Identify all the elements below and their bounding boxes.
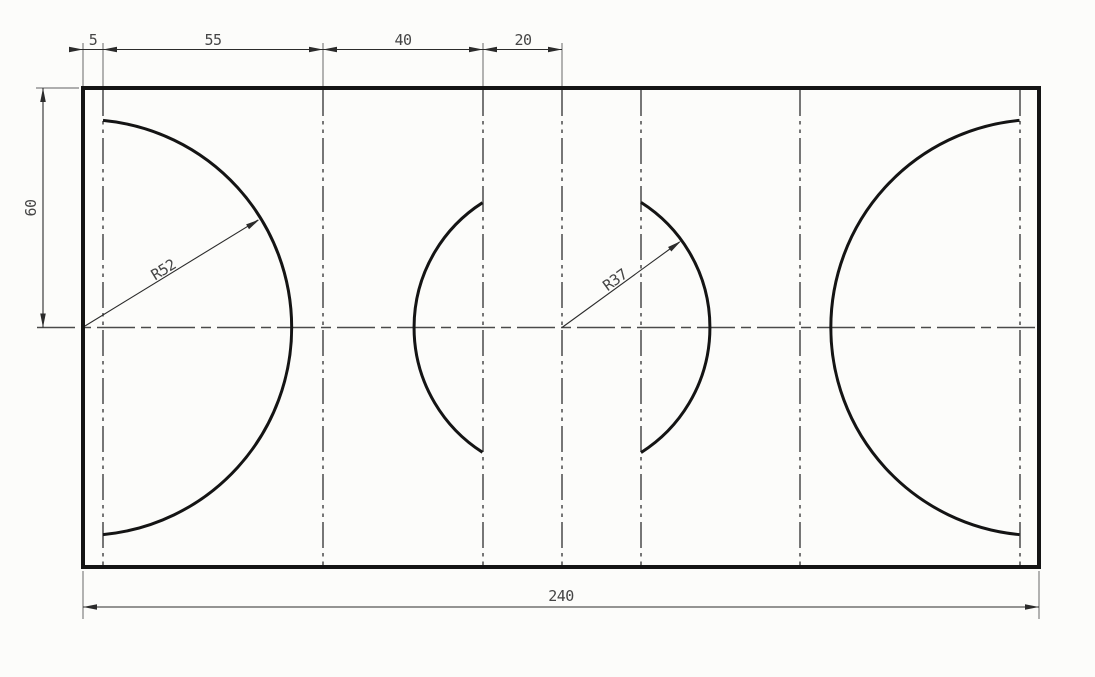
- arrow-dim60-bottom: [40, 314, 46, 328]
- dim-60-label: 60: [22, 199, 40, 217]
- arrow-r52: [246, 217, 261, 229]
- arrow-dim5-left: [69, 47, 83, 53]
- arrow-dim240-left: [83, 604, 97, 610]
- arrow-dim20-right: [548, 47, 562, 53]
- arrow-dim60-top: [40, 88, 46, 102]
- arrow-dim240-right: [1025, 604, 1039, 610]
- arrow-dim55-right: [309, 47, 323, 53]
- drawing-sheet: 5 55 40 20 60 240 R52 R37: [0, 0, 1095, 677]
- arrow-dim55-left: [103, 47, 117, 53]
- engineering-drawing-svg: 5 55 40 20 60 240 R52 R37: [0, 0, 1095, 677]
- arrow-dim40-left: [323, 47, 337, 53]
- dim-40-label: 40: [394, 31, 412, 49]
- dimension-text-group: 5 55 40 20 60 240 R52 R37: [22, 31, 631, 605]
- arrow-dim40-right: [469, 47, 483, 53]
- extension-lines-group: [36, 43, 1039, 619]
- dim-240-label: 240: [548, 587, 574, 605]
- centerlines-group: [37, 90, 1037, 565]
- dim-5-label: 5: [89, 31, 98, 49]
- radius-r52-label: R52: [148, 255, 179, 284]
- radius-r37-label: R37: [599, 265, 630, 295]
- arrow-dim20-left: [483, 47, 497, 53]
- dim-55-label: 55: [204, 31, 221, 49]
- dim-20-label: 20: [514, 31, 532, 49]
